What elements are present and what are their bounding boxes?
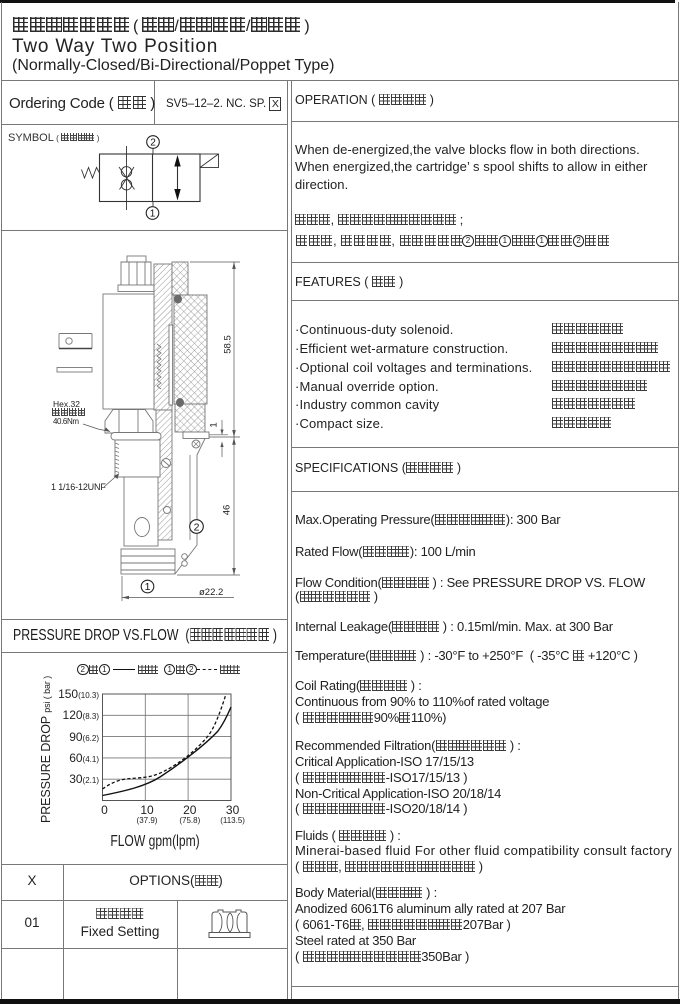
svg-text:46: 46	[222, 505, 233, 516]
svg-text:58.5: 58.5	[223, 335, 234, 354]
svg-text:1: 1	[209, 422, 220, 427]
svg-text:1: 1	[150, 209, 156, 220]
svg-text:1: 1	[145, 581, 151, 593]
svg-text:2: 2	[150, 138, 156, 149]
svg-text:2: 2	[194, 521, 200, 533]
svg-text:ø22.2: ø22.2	[199, 587, 223, 598]
